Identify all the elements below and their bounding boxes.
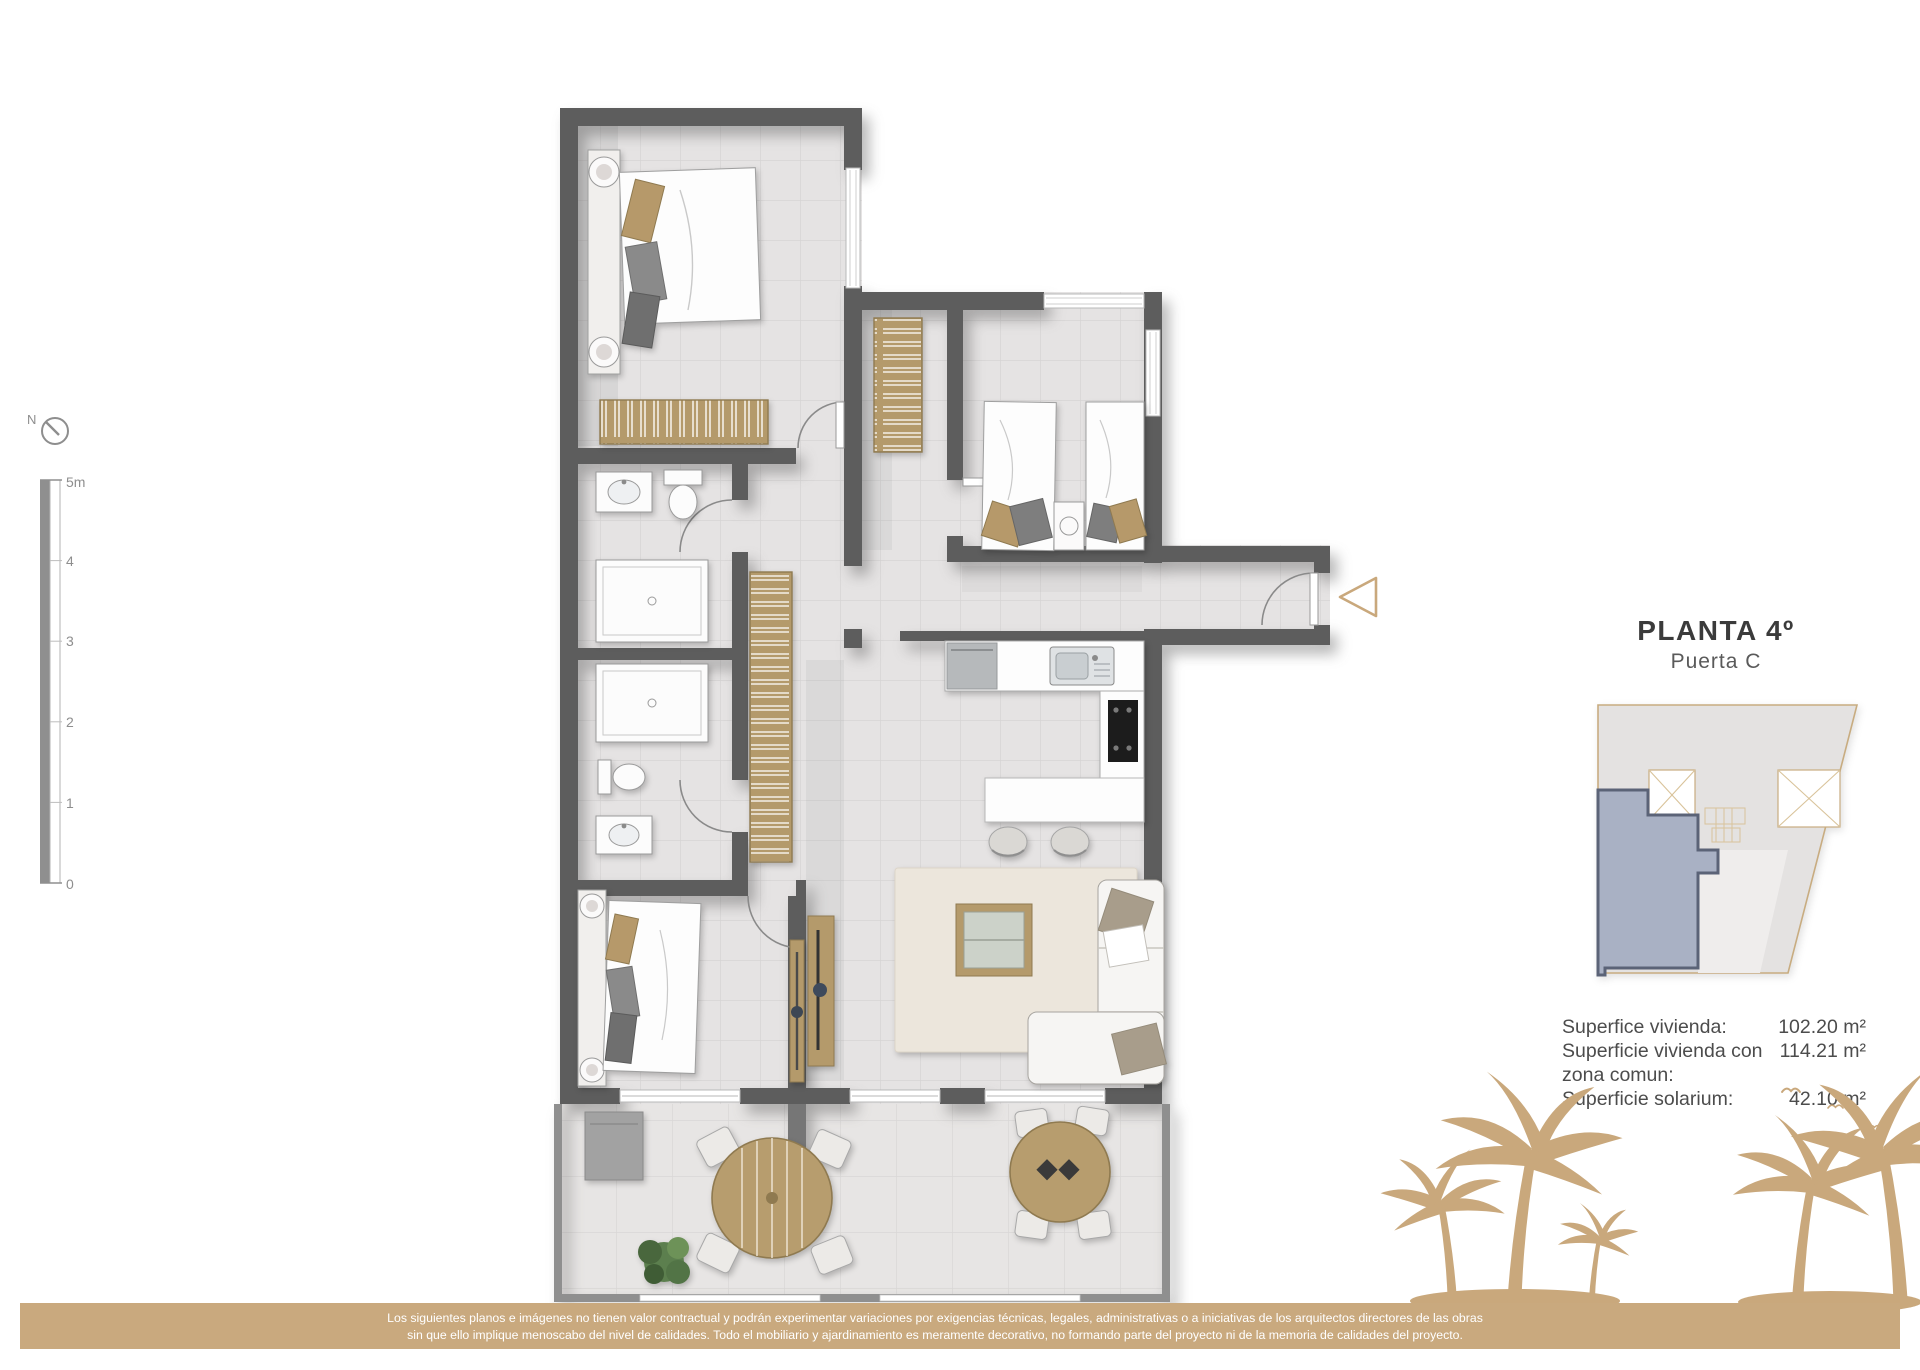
- disclaimer-line2: sin que ello implique menoscabo del nive…: [407, 1328, 1463, 1342]
- scale-tick-5m: 5m: [66, 474, 85, 490]
- kitchen-island: [985, 778, 1144, 822]
- terrace-railing-glass: [640, 1295, 820, 1301]
- coffee-table: [956, 904, 1032, 976]
- dining-round-table: [1010, 1106, 1112, 1240]
- north-compass-icon: N: [27, 412, 68, 444]
- bar-stool: [989, 827, 1027, 857]
- area-label: zona comun:: [1562, 1064, 1674, 1086]
- terrace-slider-living1: [850, 1090, 940, 1102]
- floorplan-page: N 5m 4 3 2 1 0: [0, 0, 1920, 1370]
- plant-pot: [638, 1237, 690, 1284]
- key-plan: [1598, 705, 1857, 975]
- title-block: PLANTA 4º Puerta C: [1637, 615, 1795, 673]
- scale-bar: 5m 4 3 2 1 0: [40, 474, 85, 892]
- window-bedroom1: [846, 168, 860, 288]
- page-title: PLANTA 4º: [1637, 615, 1795, 646]
- shower: [596, 664, 708, 742]
- terrace-railing-glass: [880, 1295, 1080, 1301]
- wardrobe-bedroom1: [600, 400, 768, 444]
- window-bedroom2-right: [1146, 330, 1160, 416]
- disclaimer-band: Los siguientes planos e imágenes no tien…: [20, 1303, 1900, 1349]
- bar-stool: [1051, 827, 1089, 857]
- scale-tick-1: 1: [66, 795, 74, 811]
- oven-cooktop: [1108, 700, 1138, 762]
- scale-tick-2: 2: [66, 714, 74, 730]
- bed-double-bedroom3: [578, 890, 701, 1086]
- area-value: 114.21 m²: [1780, 1040, 1867, 1062]
- scale-tick-3: 3: [66, 633, 74, 649]
- kitchen-sink: [1050, 647, 1114, 685]
- scale-tick-0: 0: [66, 876, 74, 892]
- tv-console: [808, 916, 834, 1066]
- disclaimer-line1: Los siguientes planos e imágenes no tien…: [387, 1311, 1483, 1325]
- terrace-slider-living2: [985, 1090, 1105, 1102]
- area-value: 102.20 m²: [1778, 1016, 1866, 1038]
- terrace-round-table: [695, 1125, 854, 1275]
- shower: [596, 560, 708, 642]
- compass-north-label: N: [27, 412, 36, 427]
- sink-vanity: [596, 816, 652, 854]
- storage-box: [585, 1112, 643, 1180]
- floorplan-canvas: N 5m 4 3 2 1 0: [0, 0, 1920, 1370]
- elevator-shaft: [1778, 770, 1840, 827]
- area-label: Superficie vivienda con: [1562, 1040, 1763, 1062]
- wardrobe-bedroom2: [874, 318, 922, 452]
- elevator-shaft: [1649, 770, 1695, 820]
- wardrobe-corridor: [750, 572, 792, 862]
- area-label: Superfice vivienda:: [1562, 1016, 1727, 1038]
- area-table: Superfice vivienda: 102.20 m² Superficie…: [1562, 1016, 1867, 1110]
- entry-arrow-icon: [1340, 578, 1376, 616]
- living-room: [895, 868, 1166, 1084]
- window-bedroom2-top: [1044, 294, 1144, 308]
- page-subtitle: Puerta C: [1671, 650, 1762, 673]
- sliding-door-bedroom3: [790, 940, 804, 1082]
- terrace-slider-bedroom3: [620, 1090, 740, 1102]
- floor-plan: [554, 108, 1376, 1302]
- scale-tick-4: 4: [66, 553, 74, 569]
